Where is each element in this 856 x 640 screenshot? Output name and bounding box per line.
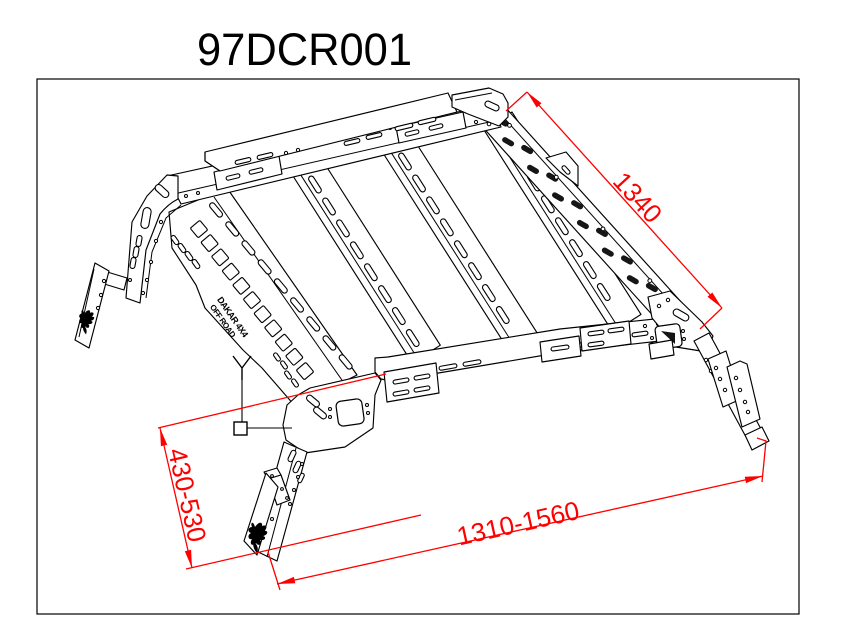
svg-text:97DCR001: 97DCR001 [197, 24, 412, 75]
